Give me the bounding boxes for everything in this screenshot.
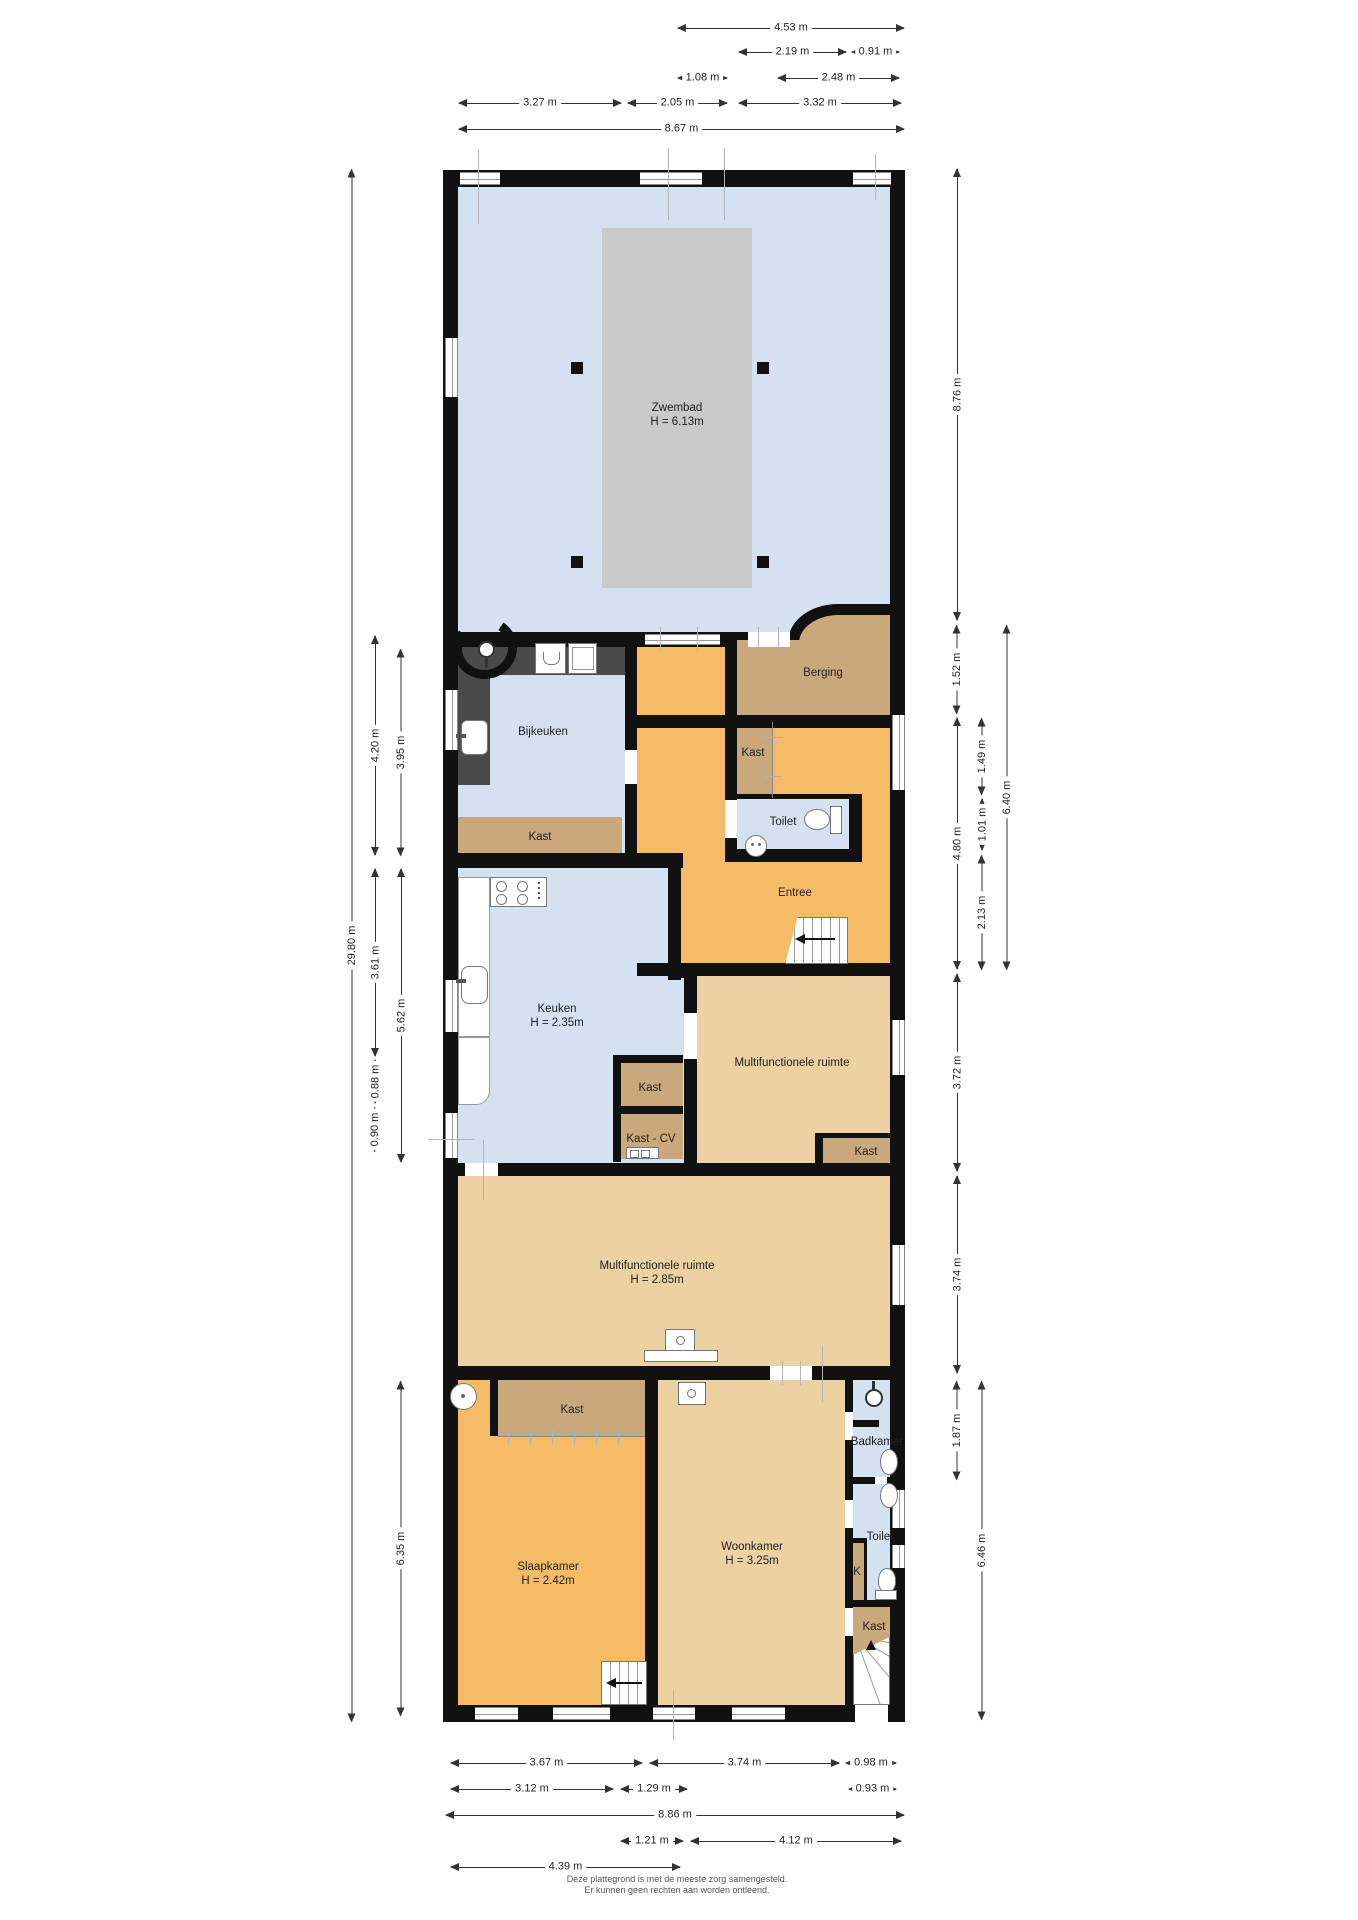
kast-entree-floor xyxy=(737,722,772,798)
room-label-kast-multifunctioneel: Kast xyxy=(854,1145,877,1159)
window xyxy=(445,980,458,1032)
stove-knob xyxy=(538,892,540,894)
wall-toilet-top xyxy=(737,794,849,799)
dimension-label: 1.52 m xyxy=(951,648,964,690)
room-label-k: K xyxy=(853,1565,861,1579)
room-name: Kast xyxy=(854,1145,877,1159)
room-label-kast-entree: Kast xyxy=(741,746,764,760)
wall-k-right xyxy=(864,1543,867,1600)
room-label-slaapkamer: SlaapkamerH = 2.42m xyxy=(517,1560,578,1588)
wall-kastr-left xyxy=(815,1133,823,1163)
window xyxy=(460,172,500,185)
dimension-label: 8.86 m xyxy=(654,1809,696,1822)
room-name: Toilet xyxy=(770,815,797,829)
wall-keuken-multifunctioneel xyxy=(684,976,697,1163)
dimension-label: 6.46 m xyxy=(976,1529,989,1571)
room-ceiling-height: H = 2.42m xyxy=(517,1574,578,1588)
dimension-line: 1.08 m xyxy=(677,74,728,83)
room-label-zwembad: ZwembadH = 6.13m xyxy=(650,401,703,429)
pool-marker xyxy=(571,556,583,568)
extension-line xyxy=(875,154,876,200)
room-name: Zwembad xyxy=(650,401,703,415)
stairs-arrow-icon xyxy=(866,1640,876,1650)
dimension-line: 1.29 m xyxy=(620,1785,688,1794)
dimension-line: 2.13 m xyxy=(978,854,987,970)
dimension-label: 5.62 m xyxy=(395,995,408,1037)
burner-icon xyxy=(496,881,507,892)
dimension-line: 1.52 m xyxy=(953,624,962,714)
dimension-line: 6.35 m xyxy=(397,1380,406,1716)
hatch-tick xyxy=(530,1429,531,1445)
dimension-line: 8.76 m xyxy=(953,168,962,621)
dimension-label: 0.90 m xyxy=(369,1108,382,1150)
shower-head-icon xyxy=(478,641,495,658)
dimension-label: 8.76 m xyxy=(951,374,964,416)
window xyxy=(892,1545,905,1568)
dimension-line: 2.19 m xyxy=(738,48,847,57)
room-label-bijkeuken: Bijkeuken xyxy=(518,725,568,739)
room-name: Kast xyxy=(862,1620,885,1634)
dimension-label: 1.87 m xyxy=(951,1409,964,1451)
dimension-line: 4.80 m xyxy=(953,717,962,970)
sink-icon xyxy=(461,966,488,1004)
door-pool-entree xyxy=(645,634,720,645)
wall-left xyxy=(443,170,458,1722)
room-label-berging: Berging xyxy=(803,666,843,680)
dimension-label: 1.01 m xyxy=(976,804,989,846)
dimension-line: 1.21 m xyxy=(620,1837,684,1846)
room-label-kast-trap: Kast xyxy=(862,1620,885,1634)
dimension-line: 4.53 m xyxy=(677,24,905,33)
dimension-line: 8.67 m xyxy=(458,125,905,134)
oval-sink-icon xyxy=(880,1449,898,1475)
dimension-label: 3.61 m xyxy=(369,942,382,984)
room-name: Multifunctionele ruimte xyxy=(599,1259,714,1273)
dimension-line: 4.39 m xyxy=(450,1863,681,1872)
wall-badkamer-stub xyxy=(853,1420,879,1427)
door-toilet xyxy=(845,1500,853,1528)
door-tick xyxy=(782,1361,783,1385)
door-tick xyxy=(758,627,759,651)
stairs-arrow-icon xyxy=(606,1678,616,1688)
dimension-label: 1.29 m xyxy=(633,1783,675,1796)
extension-line xyxy=(478,150,479,224)
sink-dot xyxy=(751,843,754,846)
extension-line xyxy=(673,1690,674,1740)
wall-berging-bottom xyxy=(637,715,890,728)
room-ceiling-height: H = 2.85m xyxy=(599,1273,714,1287)
dimension-label: 1.08 m xyxy=(682,72,724,85)
dimension-line: 3.27 m xyxy=(458,99,622,108)
hatch-tick xyxy=(596,1429,597,1445)
hatch-tick xyxy=(552,1429,553,1445)
dimension-line: 0.90 m xyxy=(371,1106,380,1152)
door-keuken-multifunctioneel xyxy=(684,1013,697,1059)
window xyxy=(653,1707,695,1720)
room-name: Berging xyxy=(803,666,843,680)
wall-kastbl-left xyxy=(490,1380,498,1436)
room-name: Kast - CV xyxy=(626,1132,675,1146)
wall-keuken-entree xyxy=(668,853,681,980)
dimension-label: 0.88 m xyxy=(369,1061,382,1103)
window xyxy=(475,1707,518,1720)
stairs-arrow-line xyxy=(616,1682,642,1684)
wall-kastr-top xyxy=(823,1133,890,1138)
faucet-icon xyxy=(456,979,466,983)
wall-entree-bottom xyxy=(637,963,890,976)
dimension-label: 3.32 m xyxy=(799,97,841,110)
stove-knob xyxy=(538,887,540,889)
window xyxy=(892,1020,905,1075)
wall-kastmid-left xyxy=(613,1055,621,1162)
dimension-line: 0.93 m xyxy=(848,1785,897,1794)
hatch-tick xyxy=(508,1429,509,1445)
dimension-label: 2.05 m xyxy=(657,97,699,110)
door-bijkeuken xyxy=(625,750,637,784)
cv-detail xyxy=(630,1150,639,1158)
shower-head-icon xyxy=(865,1389,883,1407)
kitchen-counter-low xyxy=(458,1037,490,1105)
toilet-bowl-icon xyxy=(804,809,830,830)
disclaimer-line2: Er kunnen geen rechten aan worden ontlee… xyxy=(567,1885,788,1896)
window xyxy=(445,338,458,397)
dimension-line: 1.87 m xyxy=(953,1380,962,1480)
wall-toilet-right xyxy=(849,794,862,854)
floor-plan: Deze plattegrond is met de meeste zorg s… xyxy=(0,0,1358,1920)
window xyxy=(640,172,702,185)
door-toilet-entree xyxy=(725,800,737,838)
room-ceiling-height: H = 6.13m xyxy=(650,415,703,429)
dimension-label: 0.98 m xyxy=(850,1757,892,1770)
dryer-door xyxy=(572,647,594,670)
dimension-line: 4.20 m xyxy=(371,635,380,856)
dimension-label: 3.27 m xyxy=(519,97,561,110)
dimension-line: 6.40 m xyxy=(1003,624,1012,970)
room-label-kast-slaapkamer: Kast xyxy=(560,1403,583,1417)
wall-k-top xyxy=(853,1538,867,1543)
window xyxy=(445,1113,458,1158)
fireplace-hearth xyxy=(644,1350,718,1362)
dimension-line: 0.88 m xyxy=(371,1059,380,1104)
stairs-bottom-opening xyxy=(855,1705,888,1722)
dimension-line: 3.74 m xyxy=(649,1759,840,1768)
room-label-toilet-entree: Toilet xyxy=(770,815,797,829)
dimension-label: 4.39 m xyxy=(545,1861,587,1874)
door-tick xyxy=(764,737,782,738)
dimension-label: 3.95 m xyxy=(395,731,408,773)
toilet-bowl-icon xyxy=(878,1568,896,1592)
stove-knob xyxy=(538,897,540,899)
burner-icon xyxy=(517,881,528,892)
room-name: Entree xyxy=(778,886,812,900)
room-label-kast-keuken: Kast xyxy=(638,1081,661,1095)
stairs-arrow-line xyxy=(805,938,835,940)
window xyxy=(892,715,905,790)
room-name: Slaapkamer xyxy=(517,1560,578,1574)
wall-kastmid-divider xyxy=(621,1106,683,1114)
wall-kastmid-top xyxy=(613,1055,683,1063)
sink-dot xyxy=(461,1394,465,1398)
room-name: Bijkeuken xyxy=(518,725,568,739)
room-name: Multifunctionele ruimte xyxy=(734,1056,849,1070)
dimension-line: 3.67 m xyxy=(450,1759,643,1768)
room-ceiling-height: H = 2.35m xyxy=(530,1016,583,1030)
door-tick xyxy=(660,627,661,651)
dimension-label: 3.74 m xyxy=(724,1757,766,1770)
door-ruimte-woonkamer xyxy=(770,1366,812,1380)
sink-dot xyxy=(758,843,761,846)
kast-hatch-line xyxy=(498,1436,645,1437)
dimension-label: 2.19 m xyxy=(772,46,814,59)
room-name: Kast xyxy=(528,830,551,844)
pool-marker xyxy=(571,362,583,374)
round-sink-icon xyxy=(745,835,767,857)
washing-machine-basin xyxy=(543,652,560,665)
extension-line xyxy=(428,1139,474,1140)
dimension-line: 0.91 m xyxy=(851,48,900,57)
door-tick xyxy=(764,776,782,777)
room-label-entree: Entree xyxy=(778,886,812,900)
hatch-tick xyxy=(574,1429,575,1445)
extension-line xyxy=(724,148,725,220)
shower-stem xyxy=(872,1381,875,1390)
window xyxy=(892,1245,905,1305)
faucet-icon xyxy=(456,734,466,738)
window xyxy=(445,690,458,750)
cv-detail xyxy=(641,1150,650,1158)
room-name: Woonkamer xyxy=(721,1540,783,1554)
dimension-label: 3.72 m xyxy=(951,1052,964,1094)
room-label-kast-cv: Kast - CV xyxy=(626,1132,675,1146)
window xyxy=(553,1707,610,1720)
hatch-tick xyxy=(618,1429,619,1445)
dimension-label: 4.20 m xyxy=(369,725,382,767)
dimension-line: 6.46 m xyxy=(978,1380,987,1720)
dimension-label: 0.93 m xyxy=(852,1783,894,1796)
room-name: Kast xyxy=(741,746,764,760)
door-kast-trap xyxy=(845,1608,853,1636)
kast-entree-divider xyxy=(772,722,773,798)
dimension-line: 1.01 m xyxy=(978,798,987,851)
dimension-line: 1.49 m xyxy=(978,717,987,795)
door-pool-berging xyxy=(748,632,790,647)
dimension-line: 29.80 m xyxy=(348,168,357,1722)
door-keuken-ruimte xyxy=(465,1163,498,1176)
dimension-line: 0.98 m xyxy=(845,1759,897,1768)
disclaimer-line1: Deze plattegrond is met de meeste zorg s… xyxy=(567,1874,788,1885)
room-ceiling-height: H = 3.25m xyxy=(721,1554,783,1568)
kitchen-counter xyxy=(458,877,490,1037)
dimension-label: 4.12 m xyxy=(775,1835,817,1848)
room-name: Toilet xyxy=(867,1530,894,1544)
burner-icon xyxy=(496,894,507,905)
extension-line xyxy=(483,1140,484,1200)
burner-icon xyxy=(517,894,528,905)
dimension-line: 3.32 m xyxy=(738,99,902,108)
toilet-tank-icon xyxy=(830,806,842,834)
room-name: Kast xyxy=(560,1403,583,1417)
dimension-label: 3.12 m xyxy=(511,1783,553,1796)
wall-kast-trap-top xyxy=(853,1600,890,1607)
window xyxy=(853,172,891,185)
extension-line xyxy=(668,148,669,220)
dimension-label: 4.80 m xyxy=(951,823,964,865)
dimension-line: 2.48 m xyxy=(777,74,900,83)
dimension-label: 8.67 m xyxy=(661,123,703,136)
door-tick xyxy=(697,627,698,651)
dimension-line: 3.61 m xyxy=(371,868,380,1057)
wall-section-1163 xyxy=(443,1163,890,1176)
room-label-toilet: Toilet xyxy=(867,1530,894,1544)
shower-stem xyxy=(485,657,488,668)
dimension-label: 3.74 m xyxy=(951,1254,964,1296)
dimension-label: 6.40 m xyxy=(1001,776,1014,818)
room-label-multifunctionele-ruimte-boven: Multifunctionele ruimte xyxy=(734,1056,849,1070)
dimension-line: 3.72 m xyxy=(953,973,962,1172)
dimension-line: 8.86 m xyxy=(445,1811,905,1820)
dimension-label: 1.49 m xyxy=(976,735,989,777)
fireplace-flue xyxy=(676,1336,685,1345)
pool-marker xyxy=(757,556,769,568)
dimension-label: 6.35 m xyxy=(395,1527,408,1569)
disclaimer: Deze plattegrond is met de meeste zorg s… xyxy=(567,1874,788,1896)
dimension-line: 5.62 m xyxy=(397,868,406,1163)
dimension-label: 2.13 m xyxy=(976,891,989,933)
room-name: Keuken xyxy=(530,1002,583,1016)
room-label-kast-bijkeuken: Kast xyxy=(528,830,551,844)
room-label-keuken: KeukenH = 2.35m xyxy=(530,1002,583,1030)
dimension-line: 2.05 m xyxy=(627,99,728,108)
wall-slaapkamer-woonkamer xyxy=(645,1380,658,1705)
room-label-woonkamer: WoonkamerH = 3.25m xyxy=(721,1540,783,1568)
room-name: Badkamer xyxy=(851,1435,903,1449)
wall-keuken-top xyxy=(443,853,683,868)
stove-flue xyxy=(687,1389,696,1398)
oval-sink-icon xyxy=(880,1483,898,1508)
dimension-label: 3.67 m xyxy=(526,1757,568,1770)
room-name: K xyxy=(853,1565,861,1579)
dimension-line: 3.74 m xyxy=(953,1175,962,1374)
dimension-label: 1.21 m xyxy=(631,1835,673,1848)
stairs-arrow-icon xyxy=(795,934,805,944)
dimension-line: 4.12 m xyxy=(690,1837,902,1846)
door-tick xyxy=(778,627,779,651)
window xyxy=(732,1707,785,1720)
dimension-label: 2.48 m xyxy=(818,72,860,85)
toilet-tank-icon xyxy=(875,1590,897,1600)
dimension-line: 3.95 m xyxy=(397,648,406,856)
extension-line xyxy=(822,1346,823,1402)
door-tick xyxy=(800,1361,801,1385)
room-label-badkamer: Badkamer xyxy=(851,1435,903,1449)
stove-knob xyxy=(538,882,540,884)
pool-marker xyxy=(757,362,769,374)
dimension-label: 29.80 m xyxy=(346,921,359,969)
dimension-label: 0.91 m xyxy=(855,46,897,59)
dimension-label: 4.53 m xyxy=(770,22,812,35)
room-name: Kast xyxy=(638,1081,661,1095)
dimension-line: 3.12 m xyxy=(450,1785,614,1794)
room-label-multifunctionele-ruimte: Multifunctionele ruimteH = 2.85m xyxy=(599,1259,714,1287)
